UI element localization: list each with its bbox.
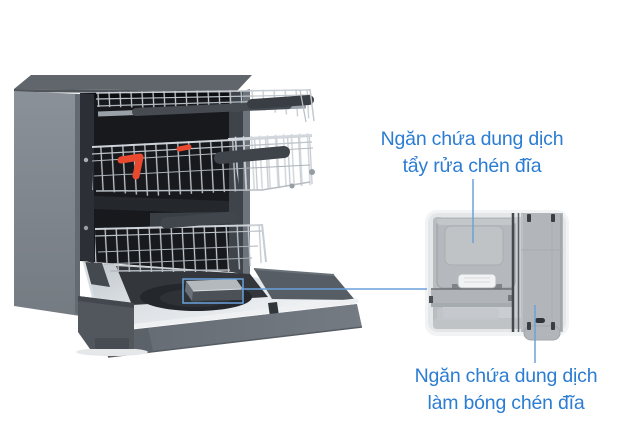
callout-label-detergent-line1: Ngăn chứa dung dịch [352, 126, 592, 153]
callout-label-detergent: Ngăn chứa dung dịch tẩy rửa chén đĩa [352, 126, 592, 180]
callout-label-detergent-line2: tẩy rửa chén đĩa [352, 153, 592, 180]
detergent-compartment [437, 219, 515, 290]
dispenser-inset-image [425, 210, 569, 340]
rack-handle [166, 217, 232, 223]
callout-label-rinse-aid: Ngăn chứa dung dịch làm bóng chén đĩa [386, 363, 626, 417]
rinse-aid-compartment [521, 213, 563, 340]
callout-label-rinse-aid-line1: Ngăn chứa dung dịch [386, 363, 626, 390]
callout-label-rinse-aid-line2: làm bóng chén đĩa [386, 390, 626, 417]
dispenser-latch [458, 274, 496, 288]
product-annotation-figure: Ngăn chứa dung dịch tẩy rửa chén đĩa Ngă… [0, 0, 640, 427]
door-detergent-dispenser [185, 279, 243, 301]
rack-handle [220, 152, 284, 158]
